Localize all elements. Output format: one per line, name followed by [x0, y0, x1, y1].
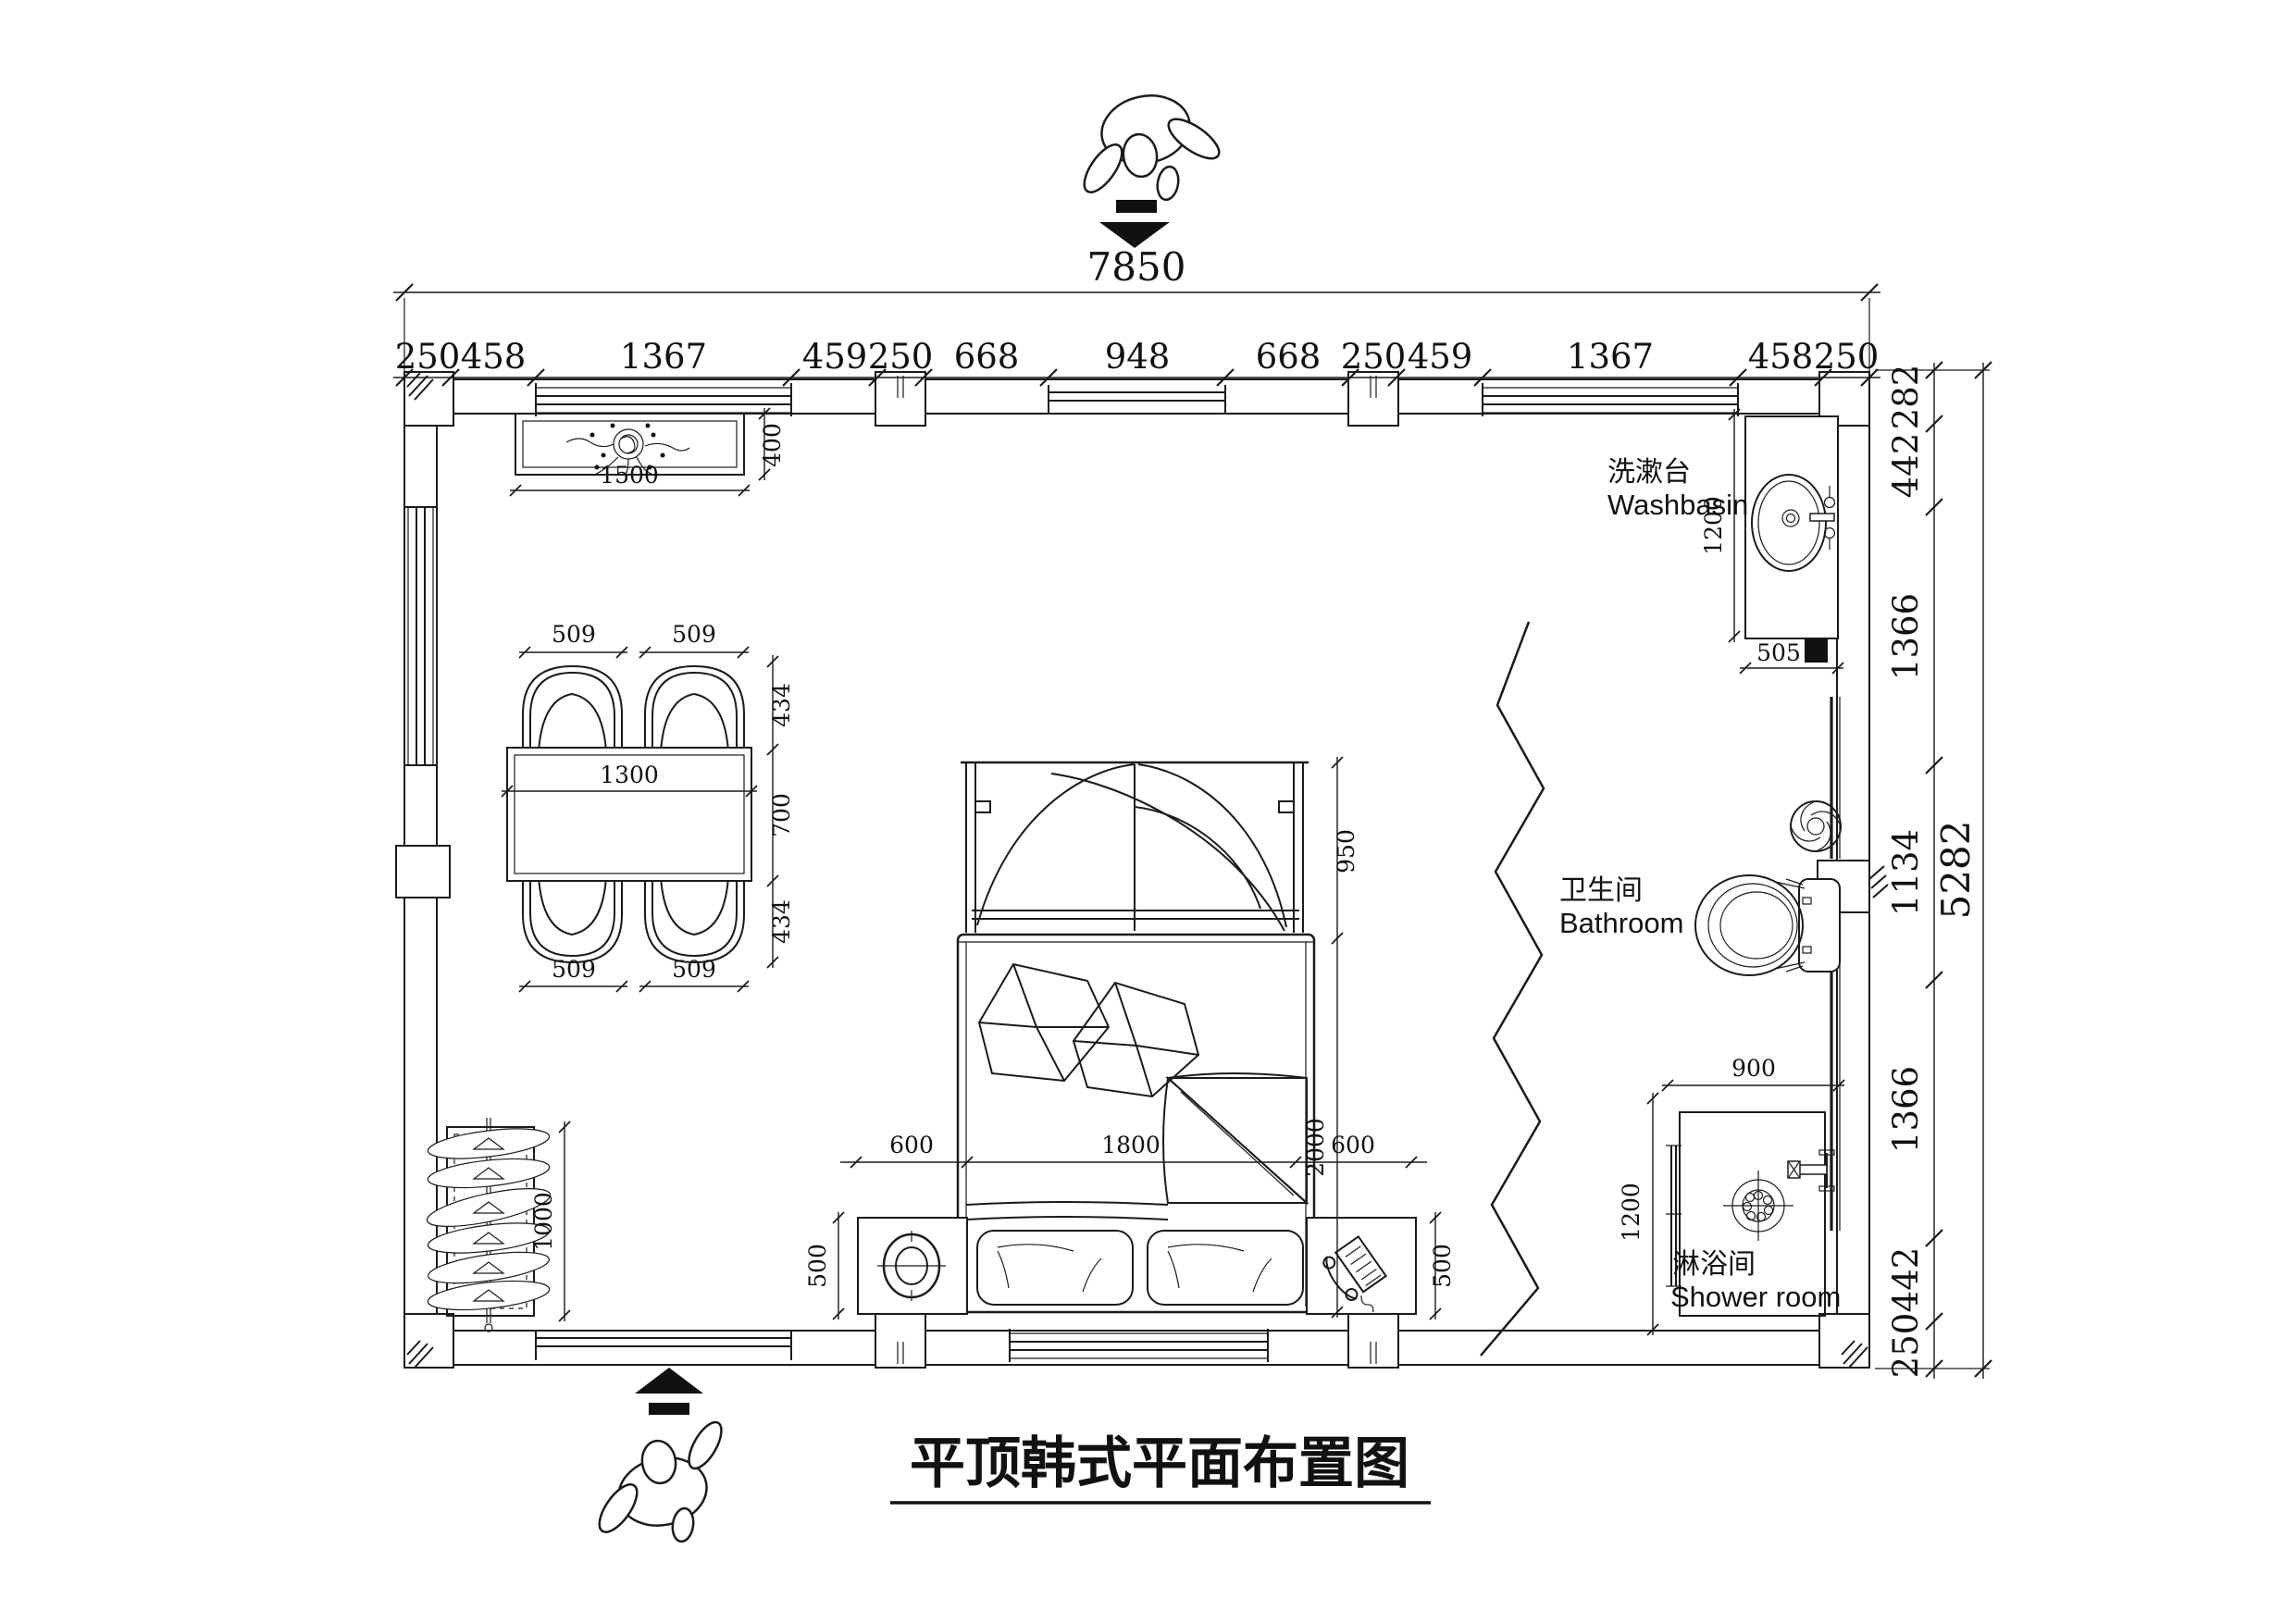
entry-figure-bottom: [592, 1368, 727, 1542]
dim-chair-bottom-2: 509: [672, 956, 716, 983]
bathroom-label-en: Bathroom: [1559, 907, 1683, 939]
dim-top-9: 250: [1341, 337, 1407, 377]
dim-shower-width: 900: [1731, 1055, 1776, 1082]
shower-label-zh: 淋浴间: [1672, 1249, 1756, 1280]
bed-group: 950 2000 600 1800 600 500 500: [804, 757, 1456, 1320]
nightstand-left: [858, 1218, 967, 1314]
entrance-bottom: [536, 1331, 791, 1360]
dim-bed-left: 600: [889, 1132, 934, 1158]
dim-right-total: 5282: [1933, 821, 1979, 920]
dining-chair-bottom-left: [523, 877, 622, 962]
bathroom-area: 卫生间 Bathroom: [1559, 801, 1841, 975]
washbasin-area: 1200 505 洗漱台 Washbasin: [1607, 409, 1843, 674]
dim-bed-length: 2000: [1302, 1118, 1329, 1177]
window-top-right: [1483, 383, 1738, 416]
shower-drain-icon: [1723, 1171, 1793, 1241]
dim-top-4: 459: [802, 337, 868, 377]
dim-top-11: 1367: [1567, 337, 1654, 377]
ceiling-light: 1500 400: [510, 408, 786, 496]
dim-right-2: 442: [1886, 433, 1926, 499]
bathroom-label-zh: 卫生间: [1559, 875, 1643, 906]
shower-area: 900 1200 淋浴间 Shower room: [1618, 1055, 1844, 1335]
dim-dining-side-2: 700: [768, 793, 795, 837]
dining-chair-bottom-right: [645, 877, 744, 962]
dim-nightstand-left: 500: [804, 1244, 831, 1288]
dim-right-1: 282: [1886, 365, 1926, 430]
top-dimension-chain: 7850 250 458 1367 459 250 668 948 668 25…: [393, 244, 1880, 386]
window-bottom: [1010, 1329, 1268, 1362]
dim-top-6: 668: [954, 337, 1020, 377]
dim-dining-side-1: 434: [768, 683, 795, 727]
floor-plan-drawing: 1500 400: [0, 0, 2296, 1623]
zigzag-partition: [1481, 622, 1544, 1356]
dim-right-7: 250: [1886, 1313, 1926, 1379]
dim-right-4: 1134: [1886, 829, 1926, 916]
window-top-left: [536, 383, 791, 416]
dim-right-5: 1366: [1886, 1066, 1926, 1153]
dim-top-13: 250: [1814, 337, 1880, 377]
dim-shower-depth: 1200: [1618, 1183, 1644, 1242]
dim-top-1: 250: [395, 337, 461, 377]
floor-plan-page: 1500 400: [0, 0, 2296, 1623]
dim-dining-side-3: 434: [768, 899, 795, 944]
right-dimension-chain: 282 442 1366 1134 1366 442 250 5282: [1875, 362, 1992, 1379]
dim-chair-top-1: 509: [552, 621, 596, 648]
dim-top-7: 948: [1105, 337, 1171, 377]
dim-top-12: 458: [1748, 337, 1814, 377]
washbasin-label-zh: 洗漱台: [1607, 457, 1691, 488]
exhaust-fan-icon: [1791, 801, 1841, 851]
toilet-icon: [1695, 875, 1840, 975]
entry-arrow-down-icon: [1099, 200, 1170, 248]
dining-chair-top-right: [645, 666, 744, 751]
dim-chair-top-2: 509: [672, 621, 716, 648]
clothes-rack: 1000: [424, 1118, 570, 1332]
floor-drain-icon: [1805, 639, 1828, 663]
shower-label-en: Shower room: [1670, 1281, 1841, 1313]
dim-bed-canopy: 950: [1333, 829, 1359, 873]
bed-canopy: [961, 762, 1309, 933]
nightstand-right: [1307, 1218, 1416, 1320]
window-left: [404, 507, 437, 765]
drawing-title: 平顶韩式平面布置图: [890, 1432, 1431, 1503]
dim-top-8: 668: [1256, 337, 1322, 377]
dim-top-3: 1367: [620, 337, 707, 377]
entry-figure-top: [1077, 88, 1225, 248]
dining-set: 509 509 509 509 434 700 434 1300: [502, 621, 795, 992]
entrance-top: [1049, 385, 1225, 415]
dim-right-3: 1366: [1886, 593, 1926, 680]
dim-top-10: 459: [1408, 337, 1473, 377]
dim-top-5: 250: [868, 337, 934, 377]
dim-table-width: 1300: [600, 762, 659, 788]
entry-arrow-up-icon: [635, 1368, 703, 1415]
dim-light-height: 400: [759, 423, 786, 467]
dim-chair-bottom-1: 509: [552, 956, 596, 983]
dim-wardrobe: 1000: [530, 1192, 557, 1251]
dining-chair-top-left: [523, 666, 622, 751]
dim-right-6: 442: [1886, 1247, 1926, 1313]
dim-top-2: 458: [461, 337, 527, 377]
dim-bed-right: 600: [1331, 1132, 1375, 1158]
dim-washbasin-width: 505: [1756, 639, 1801, 666]
dim-top-total: 7850: [1087, 244, 1186, 290]
dim-nightstand-right: 500: [1429, 1244, 1456, 1288]
dim-light-width: 1500: [600, 462, 659, 489]
title-text: 平顶韩式平面布置图: [910, 1432, 1409, 1494]
shower-head-icon: [1788, 1150, 1834, 1191]
dim-bed-width: 1800: [1101, 1132, 1160, 1158]
washbasin-label-en: Washbasin: [1607, 489, 1748, 521]
